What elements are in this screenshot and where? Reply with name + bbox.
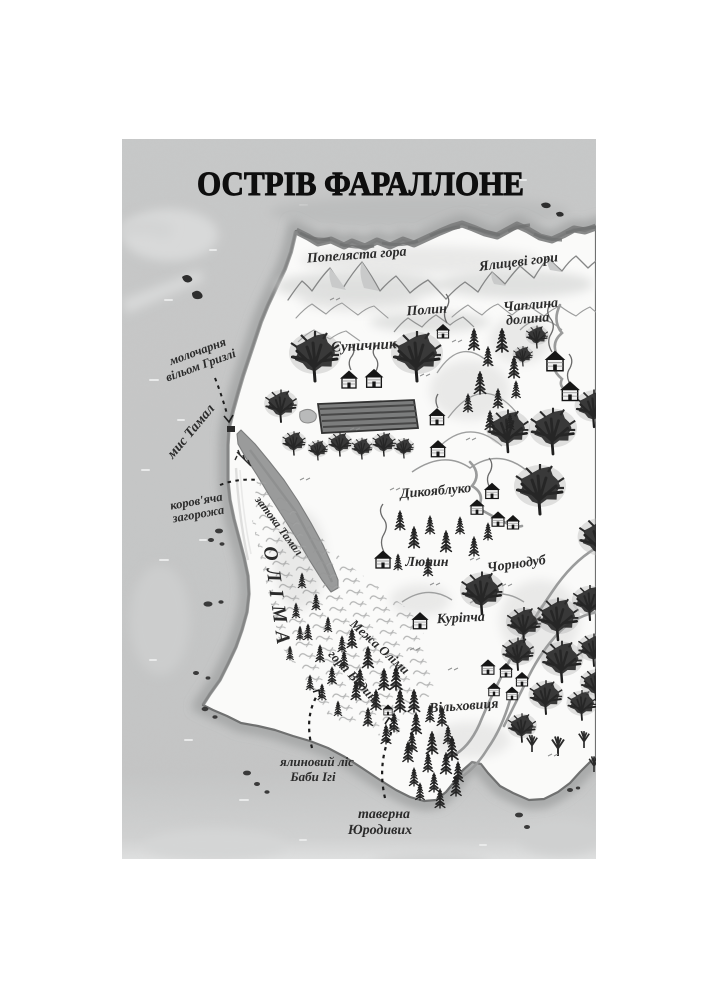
svg-text:Люпин: Люпин: [404, 555, 448, 570]
svg-text:Куріпча: Куріпча: [435, 610, 485, 628]
svg-text:Юродивих: Юродивих: [347, 823, 412, 838]
svg-text:ОСТРІВ ФАРАЛЛОНЕ: ОСТРІВ ФАРАЛЛОНЕ: [197, 166, 524, 203]
svg-text:Баби Ігі: Баби Ігі: [289, 769, 336, 784]
svg-text:таверна: таверна: [358, 807, 410, 822]
svg-text:Полин: Полин: [405, 302, 447, 320]
svg-text:ялиновий ліс: ялиновий ліс: [279, 754, 354, 769]
